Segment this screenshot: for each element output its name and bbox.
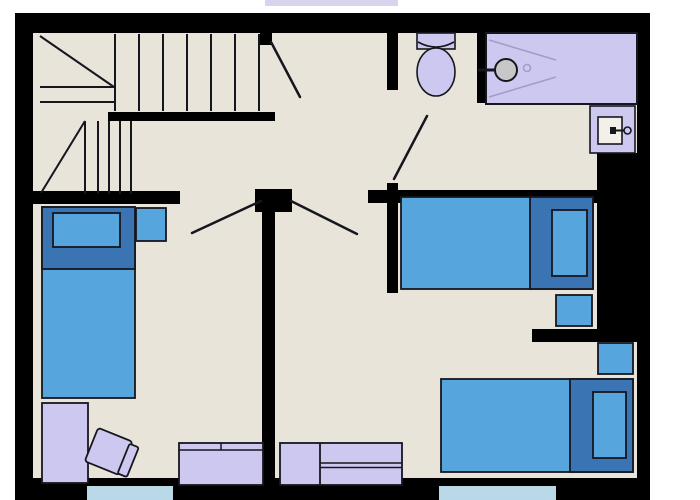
wall-bedroom1-left xyxy=(387,183,398,293)
pillow-icon xyxy=(593,392,626,458)
single-bed-icon xyxy=(441,379,633,472)
nightstand-icon xyxy=(598,343,633,374)
sink-icon xyxy=(590,106,635,153)
wall-right-chunk xyxy=(597,153,637,342)
toilet-icon xyxy=(417,33,455,96)
wall-bedroom-niche-arm xyxy=(532,329,597,342)
skylight-window-icon xyxy=(265,0,398,6)
wall-stair-mid-bar xyxy=(108,112,275,121)
nightstand-icon xyxy=(556,295,592,326)
pillow-icon xyxy=(552,210,587,276)
nightstand-icon xyxy=(136,208,166,241)
wardrobe-icon xyxy=(42,403,88,483)
wall-center-vertical xyxy=(262,191,275,478)
floor-plan-page xyxy=(0,0,700,500)
wall-toilet-shower-divider xyxy=(477,33,486,103)
window-icon xyxy=(87,486,173,500)
window-icon xyxy=(439,486,556,500)
single-bed-icon xyxy=(401,197,593,289)
pillow-icon xyxy=(53,213,120,247)
floor-plan xyxy=(0,0,700,500)
wall-left-bedroom-top xyxy=(33,191,180,204)
shower-head-icon xyxy=(495,59,517,81)
center-room xyxy=(280,443,402,485)
shower-icon xyxy=(478,33,637,104)
single-bed-icon xyxy=(42,207,135,398)
dresser-icon xyxy=(280,443,402,485)
wall-stair-door-stub xyxy=(260,33,272,45)
wall-bathroom-left-upper xyxy=(387,33,398,90)
desk-icon xyxy=(179,443,263,485)
